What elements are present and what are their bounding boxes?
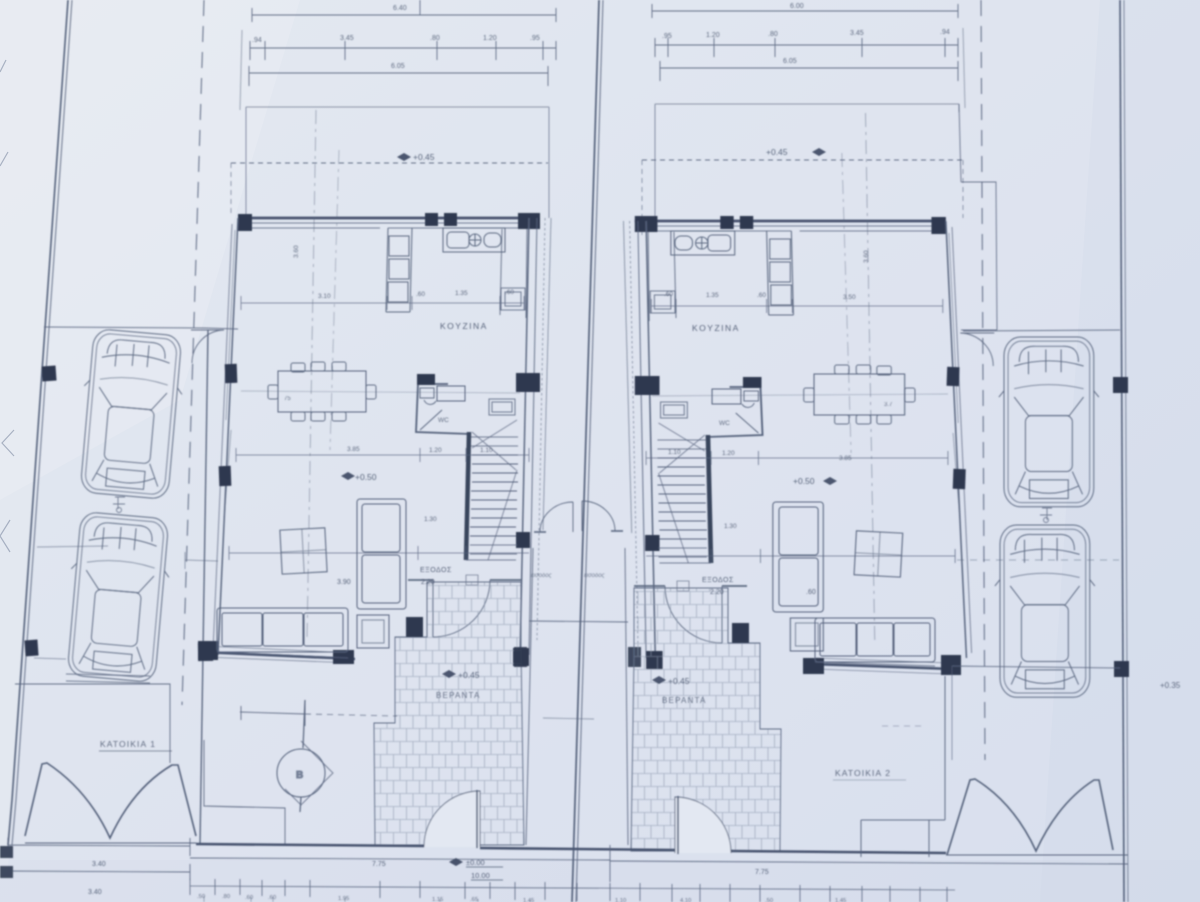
svg-text:3.60: 3.60 — [293, 245, 300, 258]
svg-text:ΕΞΟΔΟΣ: ΕΞΟΔΟΣ — [702, 577, 734, 584]
svg-text:KATOIKIA 1: KATOIKIA 1 — [100, 739, 156, 749]
svg-text:6.00: 6.00 — [790, 3, 804, 10]
svg-text:.80: .80 — [430, 35, 440, 42]
svg-text:+0.45: +0.45 — [458, 670, 480, 680]
svg-text:2.20: 2.20 — [710, 589, 724, 596]
svg-text:1.10: 1.10 — [668, 449, 681, 456]
svg-text:+0.45: +0.45 — [668, 676, 690, 686]
svg-text:3.90: 3.90 — [337, 579, 351, 586]
svg-text:3.40: 3.40 — [88, 889, 102, 896]
svg-text:.60: .60 — [806, 589, 816, 596]
svg-text:3.10: 3.10 — [318, 293, 331, 300]
svg-text:1.20: 1.20 — [429, 447, 442, 454]
svg-text:7.75: 7.75 — [755, 869, 769, 876]
svg-text:3.45: 3.45 — [850, 30, 864, 37]
svg-text:1.45: 1.45 — [523, 898, 534, 902]
svg-text:.60: .60 — [505, 289, 514, 296]
svg-text:10.00: 10.00 — [471, 871, 490, 880]
svg-text:1.95: 1.95 — [338, 896, 349, 902]
svg-text:+0.35: +0.35 — [1160, 681, 1181, 690]
svg-text:KOYZINA: KOYZINA — [440, 321, 488, 331]
svg-text:KOYZINA: KOYZINA — [692, 323, 740, 333]
svg-text:B: B — [296, 770, 303, 781]
svg-text:1.35: 1.35 — [706, 292, 719, 299]
svg-text:1.30: 1.30 — [424, 516, 437, 523]
svg-text:1.30: 1.30 — [724, 523, 737, 530]
svg-text:.95: .95 — [662, 33, 672, 40]
svg-text:3.7: 3.7 — [884, 402, 893, 408]
svg-text:.60: .60 — [416, 291, 425, 298]
svg-text:WC: WC — [438, 417, 449, 424]
svg-text:ΕΞΟΔΟΣ: ΕΞΟΔΟΣ — [420, 567, 452, 574]
svg-text:6.05: 6.05 — [391, 63, 405, 70]
svg-text:3.40: 3.40 — [92, 861, 106, 868]
svg-text:.60: .60 — [664, 291, 673, 298]
svg-text:ΒΕΡΑΝΤΑ: ΒΕΡΑΝΤΑ — [436, 691, 481, 700]
svg-text:3.85: 3.85 — [839, 455, 852, 462]
svg-text:1.10: 1.10 — [480, 447, 493, 454]
svg-text:.94: .94 — [940, 29, 950, 36]
svg-text:είσοδος: είσοδος — [531, 573, 552, 579]
svg-text:.50: .50 — [765, 898, 773, 902]
svg-text:1.35: 1.35 — [455, 290, 468, 297]
svg-text:.80: .80 — [222, 894, 230, 900]
svg-text:75: 75 — [284, 396, 291, 402]
svg-text:2.20: 2.20 — [421, 579, 435, 586]
svg-text:+0.50: +0.50 — [355, 472, 377, 482]
svg-text:.95: .95 — [530, 35, 540, 42]
svg-text:4.10: 4.10 — [680, 898, 691, 902]
svg-text:.65: .65 — [470, 897, 478, 902]
svg-text:3.60: 3.60 — [863, 250, 870, 263]
svg-text:6.40: 6.40 — [393, 5, 407, 12]
svg-text:3.85: 3.85 — [347, 446, 360, 453]
svg-text:.60: .60 — [268, 895, 276, 901]
svg-text:+0.45: +0.45 — [413, 152, 435, 162]
svg-text:.80: .80 — [768, 31, 778, 38]
svg-text:.94: .94 — [252, 37, 262, 44]
svg-text:3.45: 3.45 — [340, 35, 354, 42]
svg-text:+0.45: +0.45 — [766, 147, 788, 157]
svg-text:1.15: 1.15 — [432, 897, 443, 902]
svg-text:.60: .60 — [245, 895, 253, 901]
svg-text:1.20: 1.20 — [483, 35, 497, 42]
svg-text:1.45: 1.45 — [835, 898, 846, 902]
svg-text:1.20: 1.20 — [722, 450, 735, 457]
svg-text:WC: WC — [719, 420, 730, 427]
svg-text:±0.00: ±0.00 — [466, 858, 485, 867]
svg-text:KATOIKIA 2: KATOIKIA 2 — [835, 768, 891, 778]
svg-text:.60: .60 — [757, 292, 766, 299]
svg-text:+0.50: +0.50 — [793, 476, 815, 486]
svg-text:6.05: 6.05 — [783, 58, 797, 65]
svg-text:είσοδος: είσοδος — [584, 573, 605, 579]
svg-text:ΒΕΡΑΝΤΑ: ΒΕΡΑΝΤΑ — [662, 696, 707, 705]
svg-text:1.10: 1.10 — [615, 898, 626, 902]
svg-text:7.75: 7.75 — [372, 861, 386, 868]
svg-text:.50: .50 — [197, 894, 205, 900]
svg-text:3.50: 3.50 — [843, 294, 856, 301]
svg-text:1.20: 1.20 — [706, 32, 720, 39]
